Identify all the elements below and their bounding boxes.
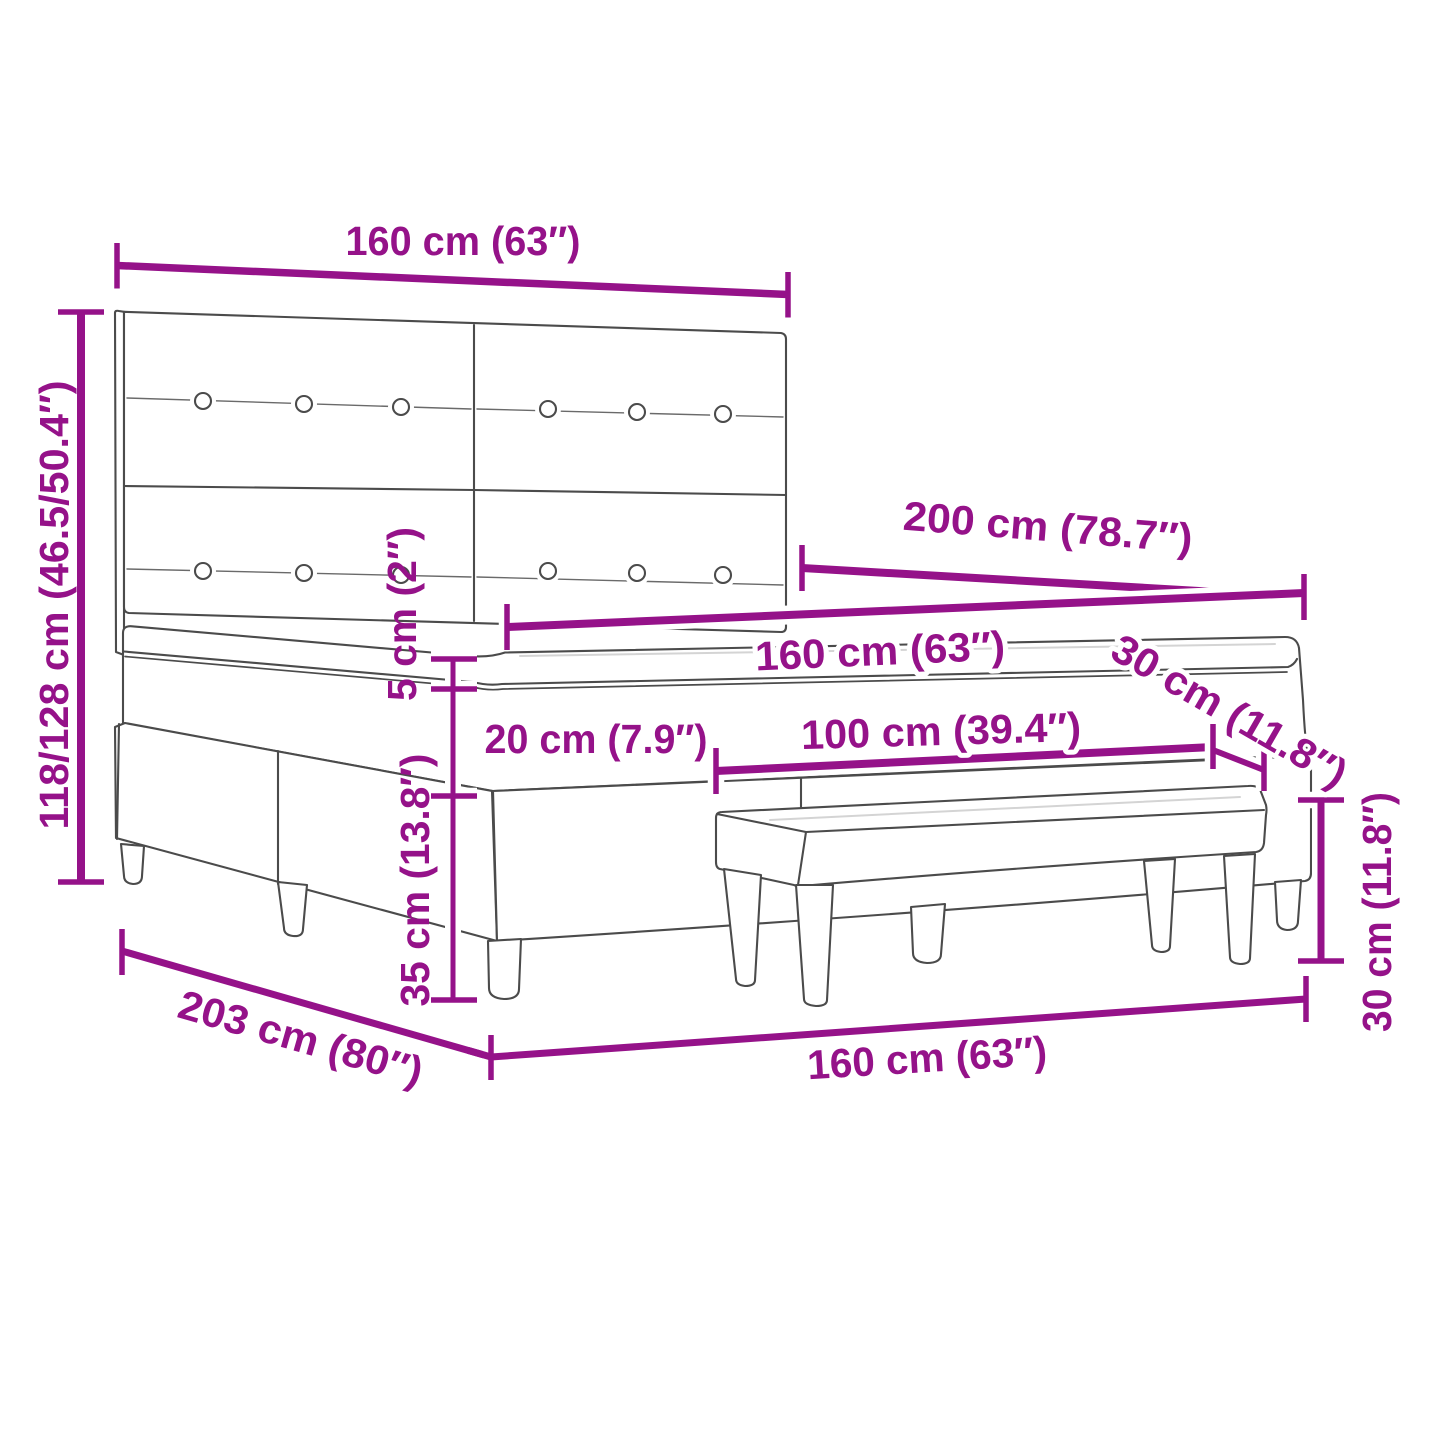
svg-text:100 cm (39.4″): 100 cm (39.4″) xyxy=(800,704,1081,758)
svg-text:20 cm (7.9″): 20 cm (7.9″) xyxy=(485,716,708,762)
svg-text:30 cm (11.8″): 30 cm (11.8″) xyxy=(1354,792,1400,1032)
svg-text:5 cm (2″): 5 cm (2″) xyxy=(379,527,425,701)
svg-text:118/128 cm (46.5/50.4″): 118/128 cm (46.5/50.4″) xyxy=(31,381,77,830)
svg-text:35 cm (13.8″): 35 cm (13.8″) xyxy=(392,754,438,1007)
svg-text:160 cm (63″): 160 cm (63″) xyxy=(346,218,581,264)
